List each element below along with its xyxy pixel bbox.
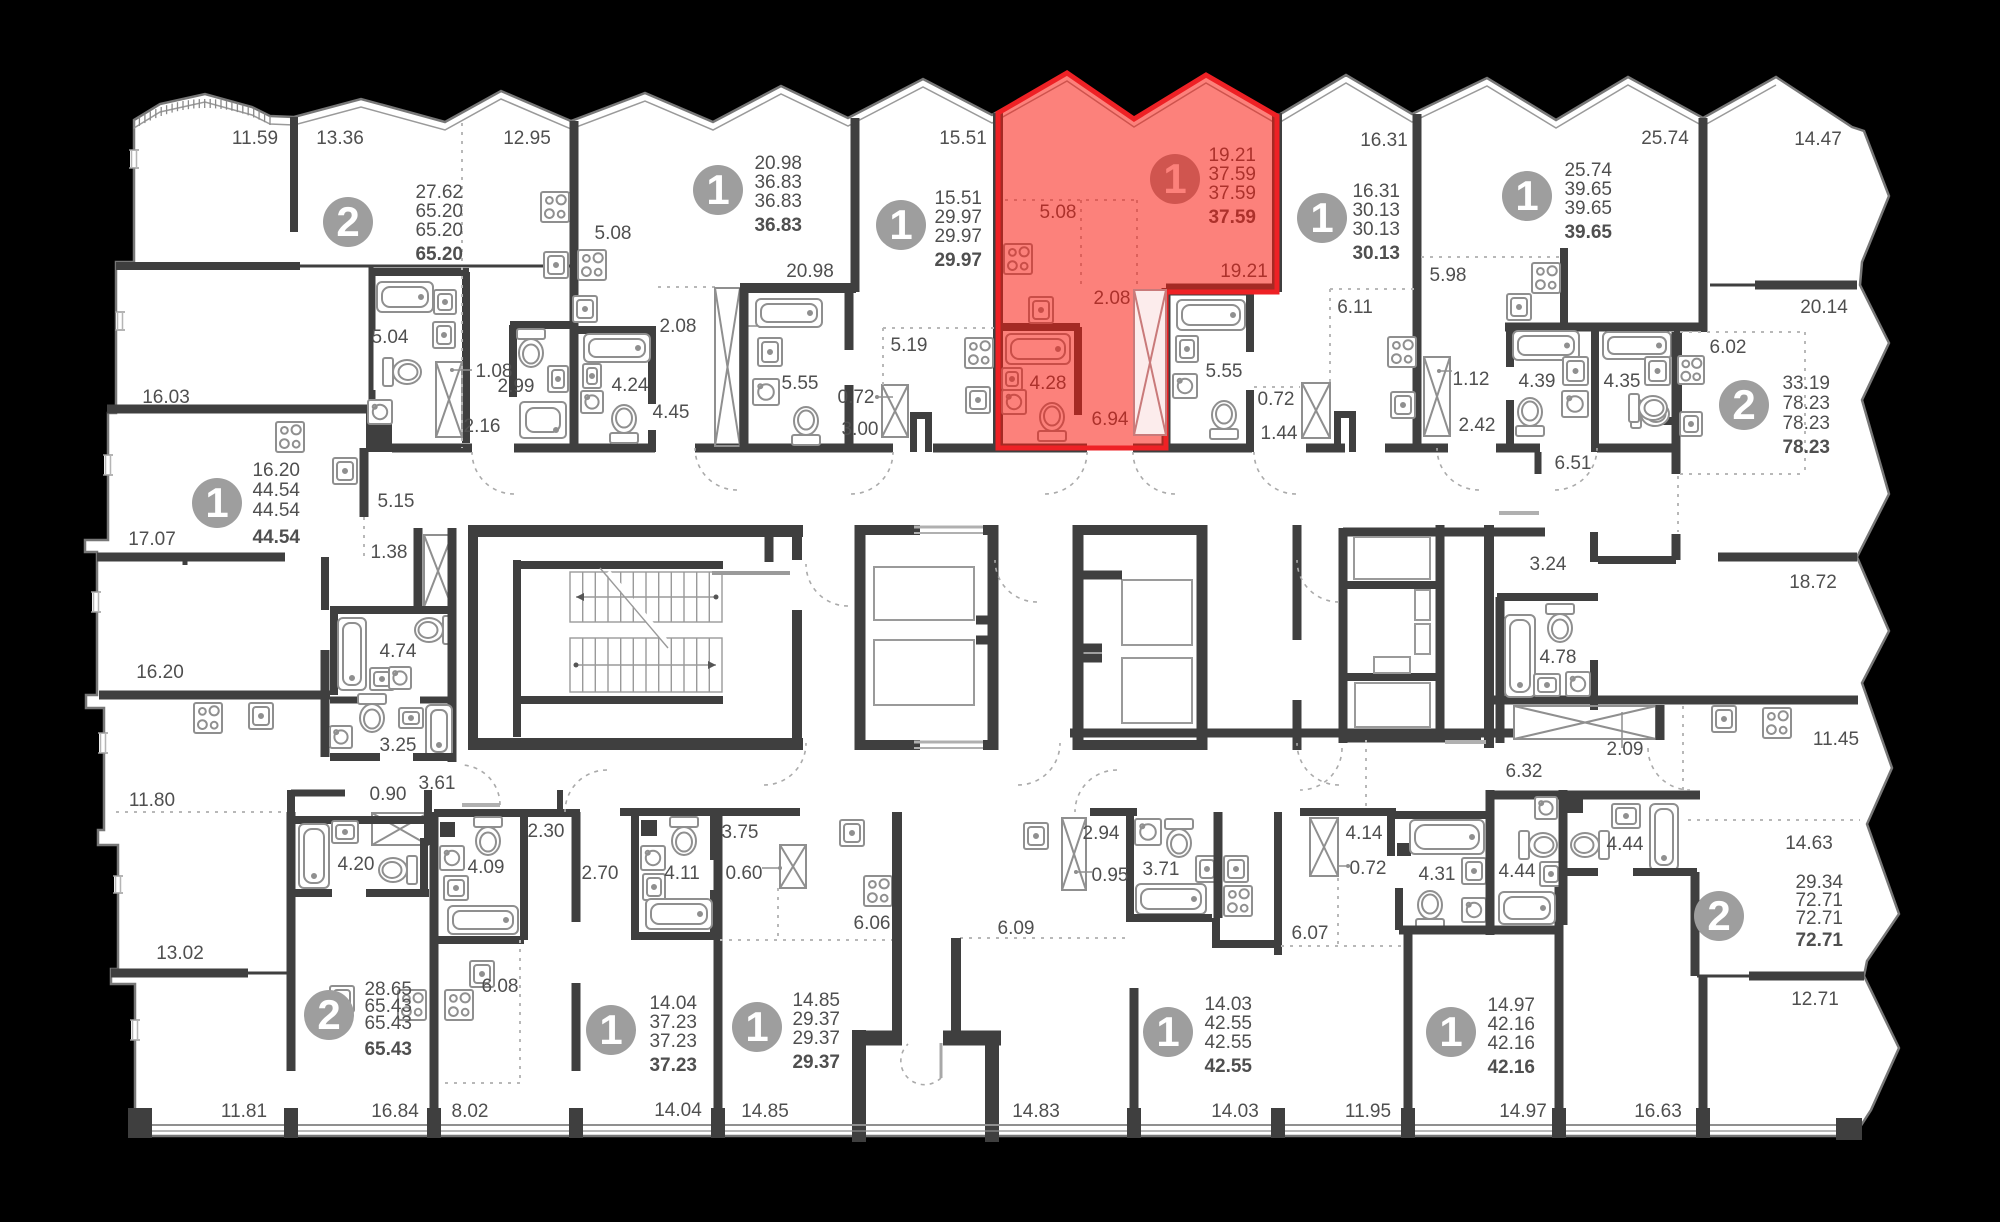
svg-text:2.16: 2.16 <box>464 416 501 437</box>
svg-text:78.23: 78.23 <box>1782 413 1830 434</box>
svg-text:3.25: 3.25 <box>380 735 417 756</box>
svg-text:1: 1 <box>205 479 228 526</box>
svg-text:17.07: 17.07 <box>128 529 176 550</box>
svg-text:65.43: 65.43 <box>364 1039 412 1060</box>
svg-text:2.08: 2.08 <box>660 316 697 337</box>
svg-text:33.19: 33.19 <box>1782 373 1830 394</box>
svg-text:14.04: 14.04 <box>649 993 697 1014</box>
svg-text:42.16: 42.16 <box>1487 1057 1535 1078</box>
svg-text:65.20: 65.20 <box>415 220 463 241</box>
svg-text:16.03: 16.03 <box>142 387 190 408</box>
svg-text:6.11: 6.11 <box>1337 297 1373 318</box>
svg-text:4.45: 4.45 <box>653 402 690 423</box>
svg-text:14.03: 14.03 <box>1211 1101 1259 1122</box>
svg-text:29.97: 29.97 <box>934 226 982 247</box>
svg-text:14.83: 14.83 <box>1012 1101 1060 1122</box>
svg-text:1: 1 <box>1439 1008 1462 1055</box>
svg-text:14.85: 14.85 <box>792 990 840 1011</box>
svg-text:2: 2 <box>1707 892 1730 939</box>
svg-text:2: 2 <box>336 198 359 245</box>
svg-text:0.90: 0.90 <box>370 784 407 805</box>
svg-text:4.78: 4.78 <box>1540 647 1577 668</box>
svg-text:1: 1 <box>889 201 912 248</box>
svg-text:5.15: 5.15 <box>378 491 415 512</box>
svg-text:2.42: 2.42 <box>1459 415 1496 436</box>
svg-text:1.38: 1.38 <box>371 542 408 563</box>
svg-text:6.32: 6.32 <box>1506 761 1543 782</box>
svg-text:14.97: 14.97 <box>1499 1101 1547 1122</box>
svg-text:16.20: 16.20 <box>136 662 184 683</box>
svg-text:37.23: 37.23 <box>649 1012 697 1033</box>
svg-text:42.16: 42.16 <box>1487 1014 1535 1035</box>
svg-text:1: 1 <box>1156 1008 1179 1055</box>
svg-text:65.20: 65.20 <box>415 201 463 222</box>
svg-text:16.31: 16.31 <box>1360 130 1408 151</box>
svg-text:36.83: 36.83 <box>754 191 802 212</box>
svg-text:13.02: 13.02 <box>156 943 204 964</box>
svg-text:11.45: 11.45 <box>1813 729 1859 750</box>
svg-text:4.44: 4.44 <box>1499 861 1536 882</box>
svg-text:78.23: 78.23 <box>1782 393 1830 414</box>
svg-text:30.13: 30.13 <box>1352 219 1400 240</box>
svg-text:3.00: 3.00 <box>842 419 879 440</box>
svg-text:1: 1 <box>706 166 729 213</box>
svg-text:12.95: 12.95 <box>503 128 551 149</box>
svg-text:13.36: 13.36 <box>316 128 364 149</box>
svg-text:3.71: 3.71 <box>1143 859 1180 880</box>
svg-text:30.13: 30.13 <box>1352 243 1400 264</box>
svg-text:2.70: 2.70 <box>582 863 619 884</box>
svg-text:2.30: 2.30 <box>528 821 565 842</box>
svg-text:20.14: 20.14 <box>1800 297 1848 318</box>
svg-text:6.02: 6.02 <box>1710 337 1747 358</box>
svg-text:4.20: 4.20 <box>338 854 375 875</box>
svg-text:42.55: 42.55 <box>1204 1013 1252 1034</box>
svg-text:4.24: 4.24 <box>612 375 649 396</box>
svg-text:1.44: 1.44 <box>1261 423 1298 444</box>
svg-text:0.72: 0.72 <box>1350 858 1387 879</box>
svg-text:2.99: 2.99 <box>498 376 535 397</box>
svg-text:5.55: 5.55 <box>1206 361 1243 382</box>
svg-text:36.83: 36.83 <box>754 172 802 193</box>
svg-text:14.03: 14.03 <box>1204 994 1252 1015</box>
svg-text:14.97: 14.97 <box>1487 995 1535 1016</box>
svg-text:14.63: 14.63 <box>1785 833 1833 854</box>
svg-text:20.98: 20.98 <box>786 261 834 282</box>
svg-text:18.72: 18.72 <box>1789 572 1837 593</box>
svg-text:42.55: 42.55 <box>1204 1056 1252 1077</box>
svg-text:44.54: 44.54 <box>252 527 300 548</box>
svg-text:6.09: 6.09 <box>998 918 1035 939</box>
svg-text:0.60: 0.60 <box>726 863 763 884</box>
svg-text:42.55: 42.55 <box>1204 1032 1252 1053</box>
svg-text:25.74: 25.74 <box>1564 160 1612 181</box>
svg-text:14.85: 14.85 <box>741 1101 789 1122</box>
svg-text:3.75: 3.75 <box>722 822 759 843</box>
svg-text:12.71: 12.71 <box>1791 989 1839 1010</box>
svg-text:16.63: 16.63 <box>1634 1101 1682 1122</box>
svg-text:4.31: 4.31 <box>1419 864 1456 885</box>
svg-text:5.98: 5.98 <box>1430 265 1467 286</box>
svg-text:30.13: 30.13 <box>1352 200 1400 221</box>
svg-text:39.65: 39.65 <box>1564 198 1612 219</box>
svg-text:5.19: 5.19 <box>891 335 928 356</box>
svg-text:1: 1 <box>1515 172 1538 219</box>
svg-text:29.37: 29.37 <box>792 1028 840 1049</box>
svg-text:1.12: 1.12 <box>1453 369 1490 390</box>
svg-text:5.08: 5.08 <box>595 223 632 244</box>
svg-text:0.72: 0.72 <box>1258 389 1295 410</box>
svg-text:1: 1 <box>1310 194 1333 241</box>
svg-text:4.14: 4.14 <box>1346 823 1383 844</box>
svg-text:1: 1 <box>745 1003 768 1050</box>
svg-text:11.80: 11.80 <box>129 790 175 811</box>
svg-text:4.74: 4.74 <box>380 641 417 662</box>
svg-text:2.94: 2.94 <box>1083 823 1120 844</box>
svg-text:11.59: 11.59 <box>232 128 278 149</box>
svg-text:27.62: 27.62 <box>415 182 463 203</box>
svg-text:14.47: 14.47 <box>1794 129 1842 150</box>
svg-text:36.83: 36.83 <box>754 215 802 236</box>
svg-text:4.35: 4.35 <box>1604 371 1641 392</box>
svg-text:29.37: 29.37 <box>792 1009 840 1030</box>
svg-text:37.23: 37.23 <box>649 1031 697 1052</box>
svg-text:16.84: 16.84 <box>371 1101 419 1122</box>
svg-text:6.06: 6.06 <box>854 913 891 934</box>
svg-text:15.51: 15.51 <box>934 188 982 209</box>
svg-text:25.74: 25.74 <box>1641 128 1689 149</box>
svg-text:72.71: 72.71 <box>1795 930 1843 951</box>
svg-text:0.72: 0.72 <box>838 387 875 408</box>
svg-text:0.95: 0.95 <box>1092 865 1129 886</box>
svg-text:6.51: 6.51 <box>1555 453 1592 474</box>
svg-text:4.39: 4.39 <box>1519 371 1556 392</box>
svg-text:44.54: 44.54 <box>252 500 300 521</box>
svg-text:14.04: 14.04 <box>654 1100 702 1121</box>
svg-text:4.44: 4.44 <box>1607 834 1644 855</box>
svg-text:37.23: 37.23 <box>649 1055 697 1076</box>
svg-text:29.37: 29.37 <box>792 1052 840 1073</box>
svg-text:5.55: 5.55 <box>782 373 819 394</box>
svg-text:11.81: 11.81 <box>221 1101 267 1122</box>
svg-text:3.61: 3.61 <box>419 773 456 794</box>
svg-text:78.23: 78.23 <box>1782 437 1830 458</box>
svg-text:29.97: 29.97 <box>934 250 982 271</box>
svg-text:16.20: 16.20 <box>252 460 300 481</box>
svg-text:2: 2 <box>1732 381 1755 428</box>
svg-text:72.71: 72.71 <box>1795 908 1843 929</box>
svg-text:44.54: 44.54 <box>252 480 300 501</box>
svg-text:29.97: 29.97 <box>934 207 982 228</box>
svg-text:65.43: 65.43 <box>364 1013 412 1034</box>
svg-text:6.07: 6.07 <box>1292 923 1329 944</box>
svg-text:20.98: 20.98 <box>754 153 802 174</box>
svg-text:2.09: 2.09 <box>1607 739 1644 760</box>
svg-text:15.51: 15.51 <box>939 128 987 149</box>
svg-text:42.16: 42.16 <box>1487 1033 1535 1054</box>
svg-text:3.24: 3.24 <box>1530 554 1567 575</box>
svg-text:16.31: 16.31 <box>1352 181 1400 202</box>
svg-text:4.11: 4.11 <box>664 863 700 884</box>
svg-text:11.95: 11.95 <box>1345 1101 1391 1122</box>
svg-text:5.04: 5.04 <box>372 327 409 348</box>
svg-text:8.02: 8.02 <box>452 1101 489 1122</box>
svg-text:39.65: 39.65 <box>1564 222 1612 243</box>
svg-text:2: 2 <box>317 991 340 1038</box>
svg-text:1: 1 <box>599 1006 622 1053</box>
svg-text:4.09: 4.09 <box>468 857 505 878</box>
svg-text:39.65: 39.65 <box>1564 179 1612 200</box>
svg-text:65.20: 65.20 <box>415 244 463 265</box>
svg-text:6.08: 6.08 <box>482 976 519 997</box>
